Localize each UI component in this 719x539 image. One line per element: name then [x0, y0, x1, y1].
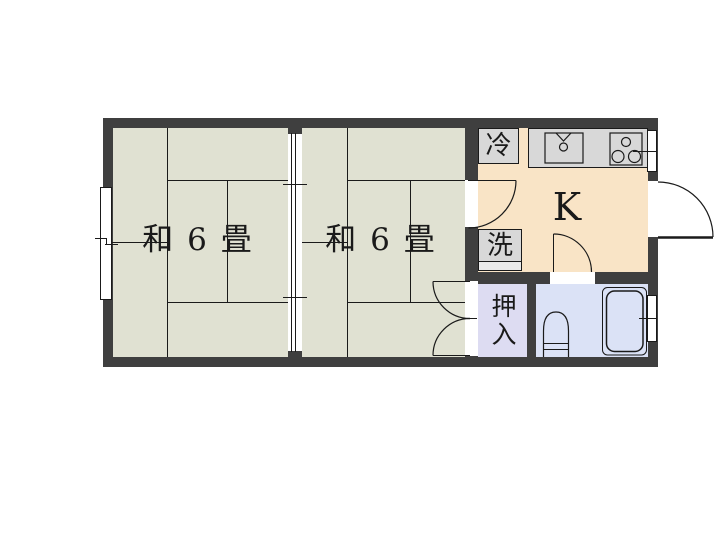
bathroom-floor: [536, 284, 648, 357]
closet-opening: [465, 281, 478, 356]
washing-machine-space: 洗: [478, 229, 522, 262]
bathroom-window: [647, 295, 657, 342]
refrigerator-label: 冷: [485, 133, 511, 159]
room2-label: 和 6 畳: [301, 223, 461, 257]
washing-machine-pan: [478, 261, 522, 271]
left-window: [100, 187, 112, 300]
entry-door-opening: [648, 181, 658, 237]
kitchen-door-opening: [465, 180, 478, 227]
floor-plan: 冷 洗: [0, 0, 719, 539]
room1-label: 和 6 畳: [118, 223, 278, 257]
kitchen-window: [647, 130, 657, 172]
kitchen-counter: [528, 128, 648, 168]
bathroom-door-opening: [550, 272, 595, 284]
entry-door-swing: [658, 182, 713, 238]
closet-label: 押入: [487, 287, 515, 355]
sliding-door-channel: [288, 128, 302, 357]
refrigerator-space: 冷: [478, 128, 519, 164]
kitchen-label: K: [537, 188, 597, 226]
washing-machine-label: 洗: [487, 233, 513, 259]
